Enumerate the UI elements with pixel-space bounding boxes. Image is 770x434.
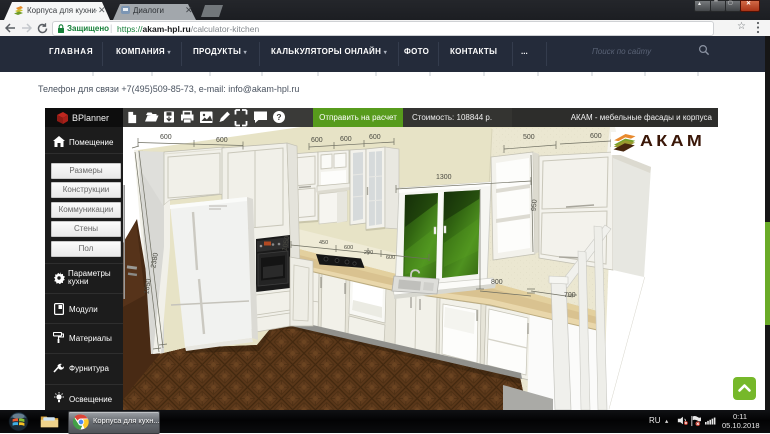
svg-text:700: 700 <box>564 292 576 299</box>
svg-text:1300: 1300 <box>436 174 452 181</box>
svg-text:600: 600 <box>386 255 395 261</box>
svg-text:600: 600 <box>340 136 352 143</box>
svg-text:600: 600 <box>311 137 323 144</box>
svg-text:500: 500 <box>523 134 535 141</box>
svg-text:450: 450 <box>319 240 328 246</box>
svg-text:290: 290 <box>364 250 373 256</box>
svg-text:950: 950 <box>531 199 539 211</box>
svg-text:600: 600 <box>216 137 228 144</box>
svg-text:600: 600 <box>590 133 602 140</box>
svg-text:800: 800 <box>491 279 503 286</box>
svg-text:600: 600 <box>160 134 172 141</box>
svg-text:600: 600 <box>369 134 381 141</box>
svg-text:?: ? <box>276 112 281 122</box>
svg-text:600: 600 <box>344 245 353 251</box>
